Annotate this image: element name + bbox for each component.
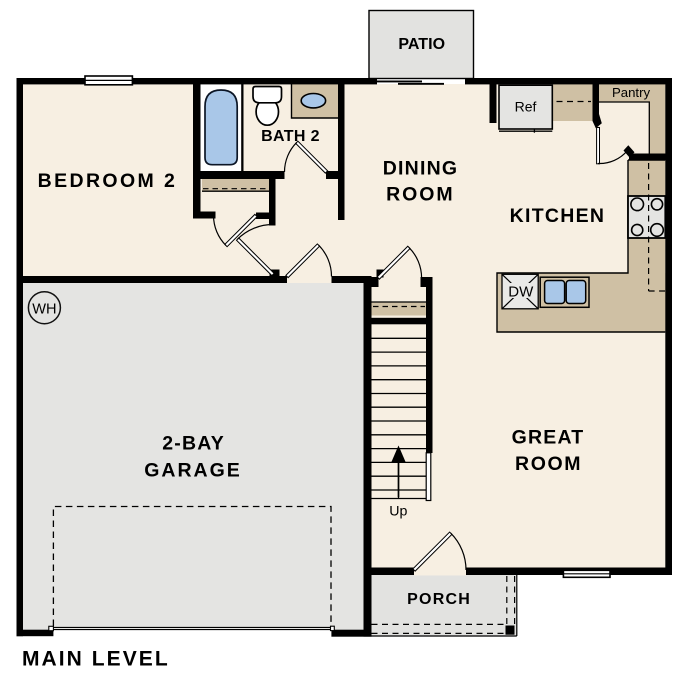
svg-text:PORCH: PORCH: [407, 591, 470, 608]
svg-text:WH: WH: [32, 302, 56, 318]
svg-text:GREAT: GREAT: [512, 427, 584, 449]
svg-text:MAIN LEVEL: MAIN LEVEL: [22, 647, 168, 670]
svg-text:ROOM: ROOM: [515, 453, 581, 475]
svg-text:PATIO: PATIO: [398, 36, 445, 53]
svg-text:2-BAY: 2-BAY: [162, 433, 224, 455]
svg-text:DW: DW: [508, 283, 534, 300]
svg-text:Ref: Ref: [515, 99, 537, 115]
svg-text:DINING: DINING: [383, 158, 457, 180]
svg-text:BATH 2: BATH 2: [261, 128, 319, 145]
svg-text:Pantry: Pantry: [612, 85, 651, 100]
svg-text:Up: Up: [389, 504, 407, 520]
svg-text:ROOM: ROOM: [386, 184, 453, 206]
